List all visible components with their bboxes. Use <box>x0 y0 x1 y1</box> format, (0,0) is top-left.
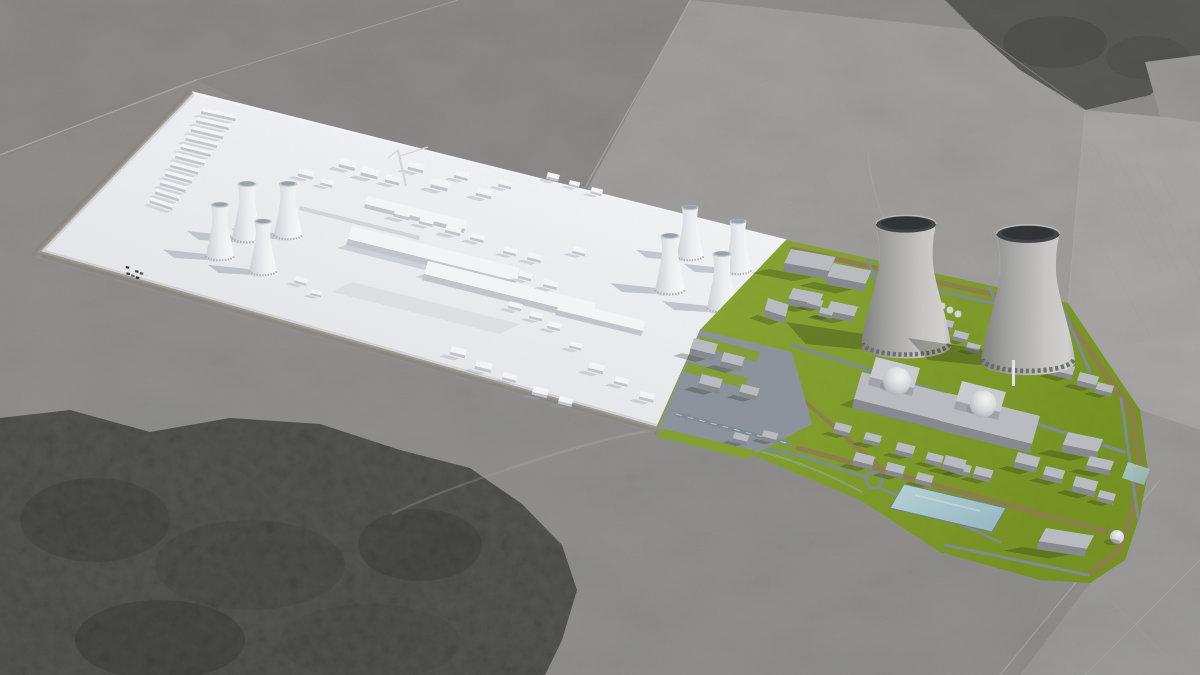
aerial-render: Aerial 3D visualization of a nuclear pow… <box>0 0 1200 675</box>
photo-grain-light <box>0 0 1200 675</box>
render-canvas: Aerial 3D visualization of a nuclear pow… <box>0 0 1200 675</box>
